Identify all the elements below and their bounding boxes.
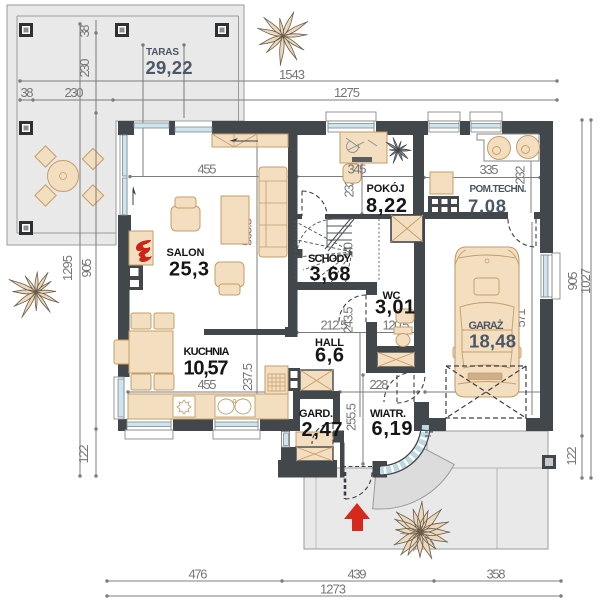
svg-text:455: 455 <box>198 162 217 177</box>
svg-text:237.5: 237.5 <box>240 363 255 391</box>
svg-text:7,08: 7,08 <box>468 196 506 217</box>
svg-text:232: 232 <box>513 166 528 185</box>
svg-text:3,68: 3,68 <box>310 264 351 286</box>
svg-text:KUCHNIA: KUCHNIA <box>184 346 230 358</box>
svg-text:476: 476 <box>189 567 208 582</box>
svg-text:10,57: 10,57 <box>184 358 229 380</box>
svg-text:1295: 1295 <box>60 255 75 281</box>
svg-text:439: 439 <box>348 567 367 582</box>
svg-text:SALON: SALON <box>167 247 205 259</box>
svg-text:POM.TECHN.: POM.TECHN. <box>470 184 527 195</box>
svg-text:6,6: 6,6 <box>315 345 344 367</box>
svg-text:1273: 1273 <box>320 582 346 597</box>
svg-text:1027: 1027 <box>578 268 593 294</box>
svg-text:18,48: 18,48 <box>469 331 516 352</box>
svg-text:358: 358 <box>487 567 506 582</box>
svg-text:3,01: 3,01 <box>375 297 415 319</box>
svg-text:122: 122 <box>76 445 91 464</box>
svg-text:243.5: 243.5 <box>341 307 356 334</box>
svg-text:2,47: 2,47 <box>302 419 343 441</box>
svg-text:29,22: 29,22 <box>146 57 193 78</box>
svg-text:122: 122 <box>564 447 579 466</box>
svg-text:38: 38 <box>77 25 92 38</box>
svg-text:345: 345 <box>348 162 367 177</box>
svg-text:228: 228 <box>370 377 389 392</box>
svg-text:905: 905 <box>79 259 94 278</box>
svg-text:230: 230 <box>65 85 84 100</box>
svg-text:230: 230 <box>77 59 92 78</box>
svg-text:8,22: 8,22 <box>366 195 407 217</box>
svg-text:1275: 1275 <box>334 85 360 100</box>
svg-text:335: 335 <box>480 162 499 177</box>
svg-text:POKÓJ: POKÓJ <box>367 182 405 195</box>
svg-text:255.5: 255.5 <box>344 403 359 431</box>
svg-text:1543: 1543 <box>279 67 305 82</box>
svg-text:6,19: 6,19 <box>372 418 413 440</box>
svg-text:25,3: 25,3 <box>169 259 209 281</box>
svg-text:38: 38 <box>21 85 34 100</box>
